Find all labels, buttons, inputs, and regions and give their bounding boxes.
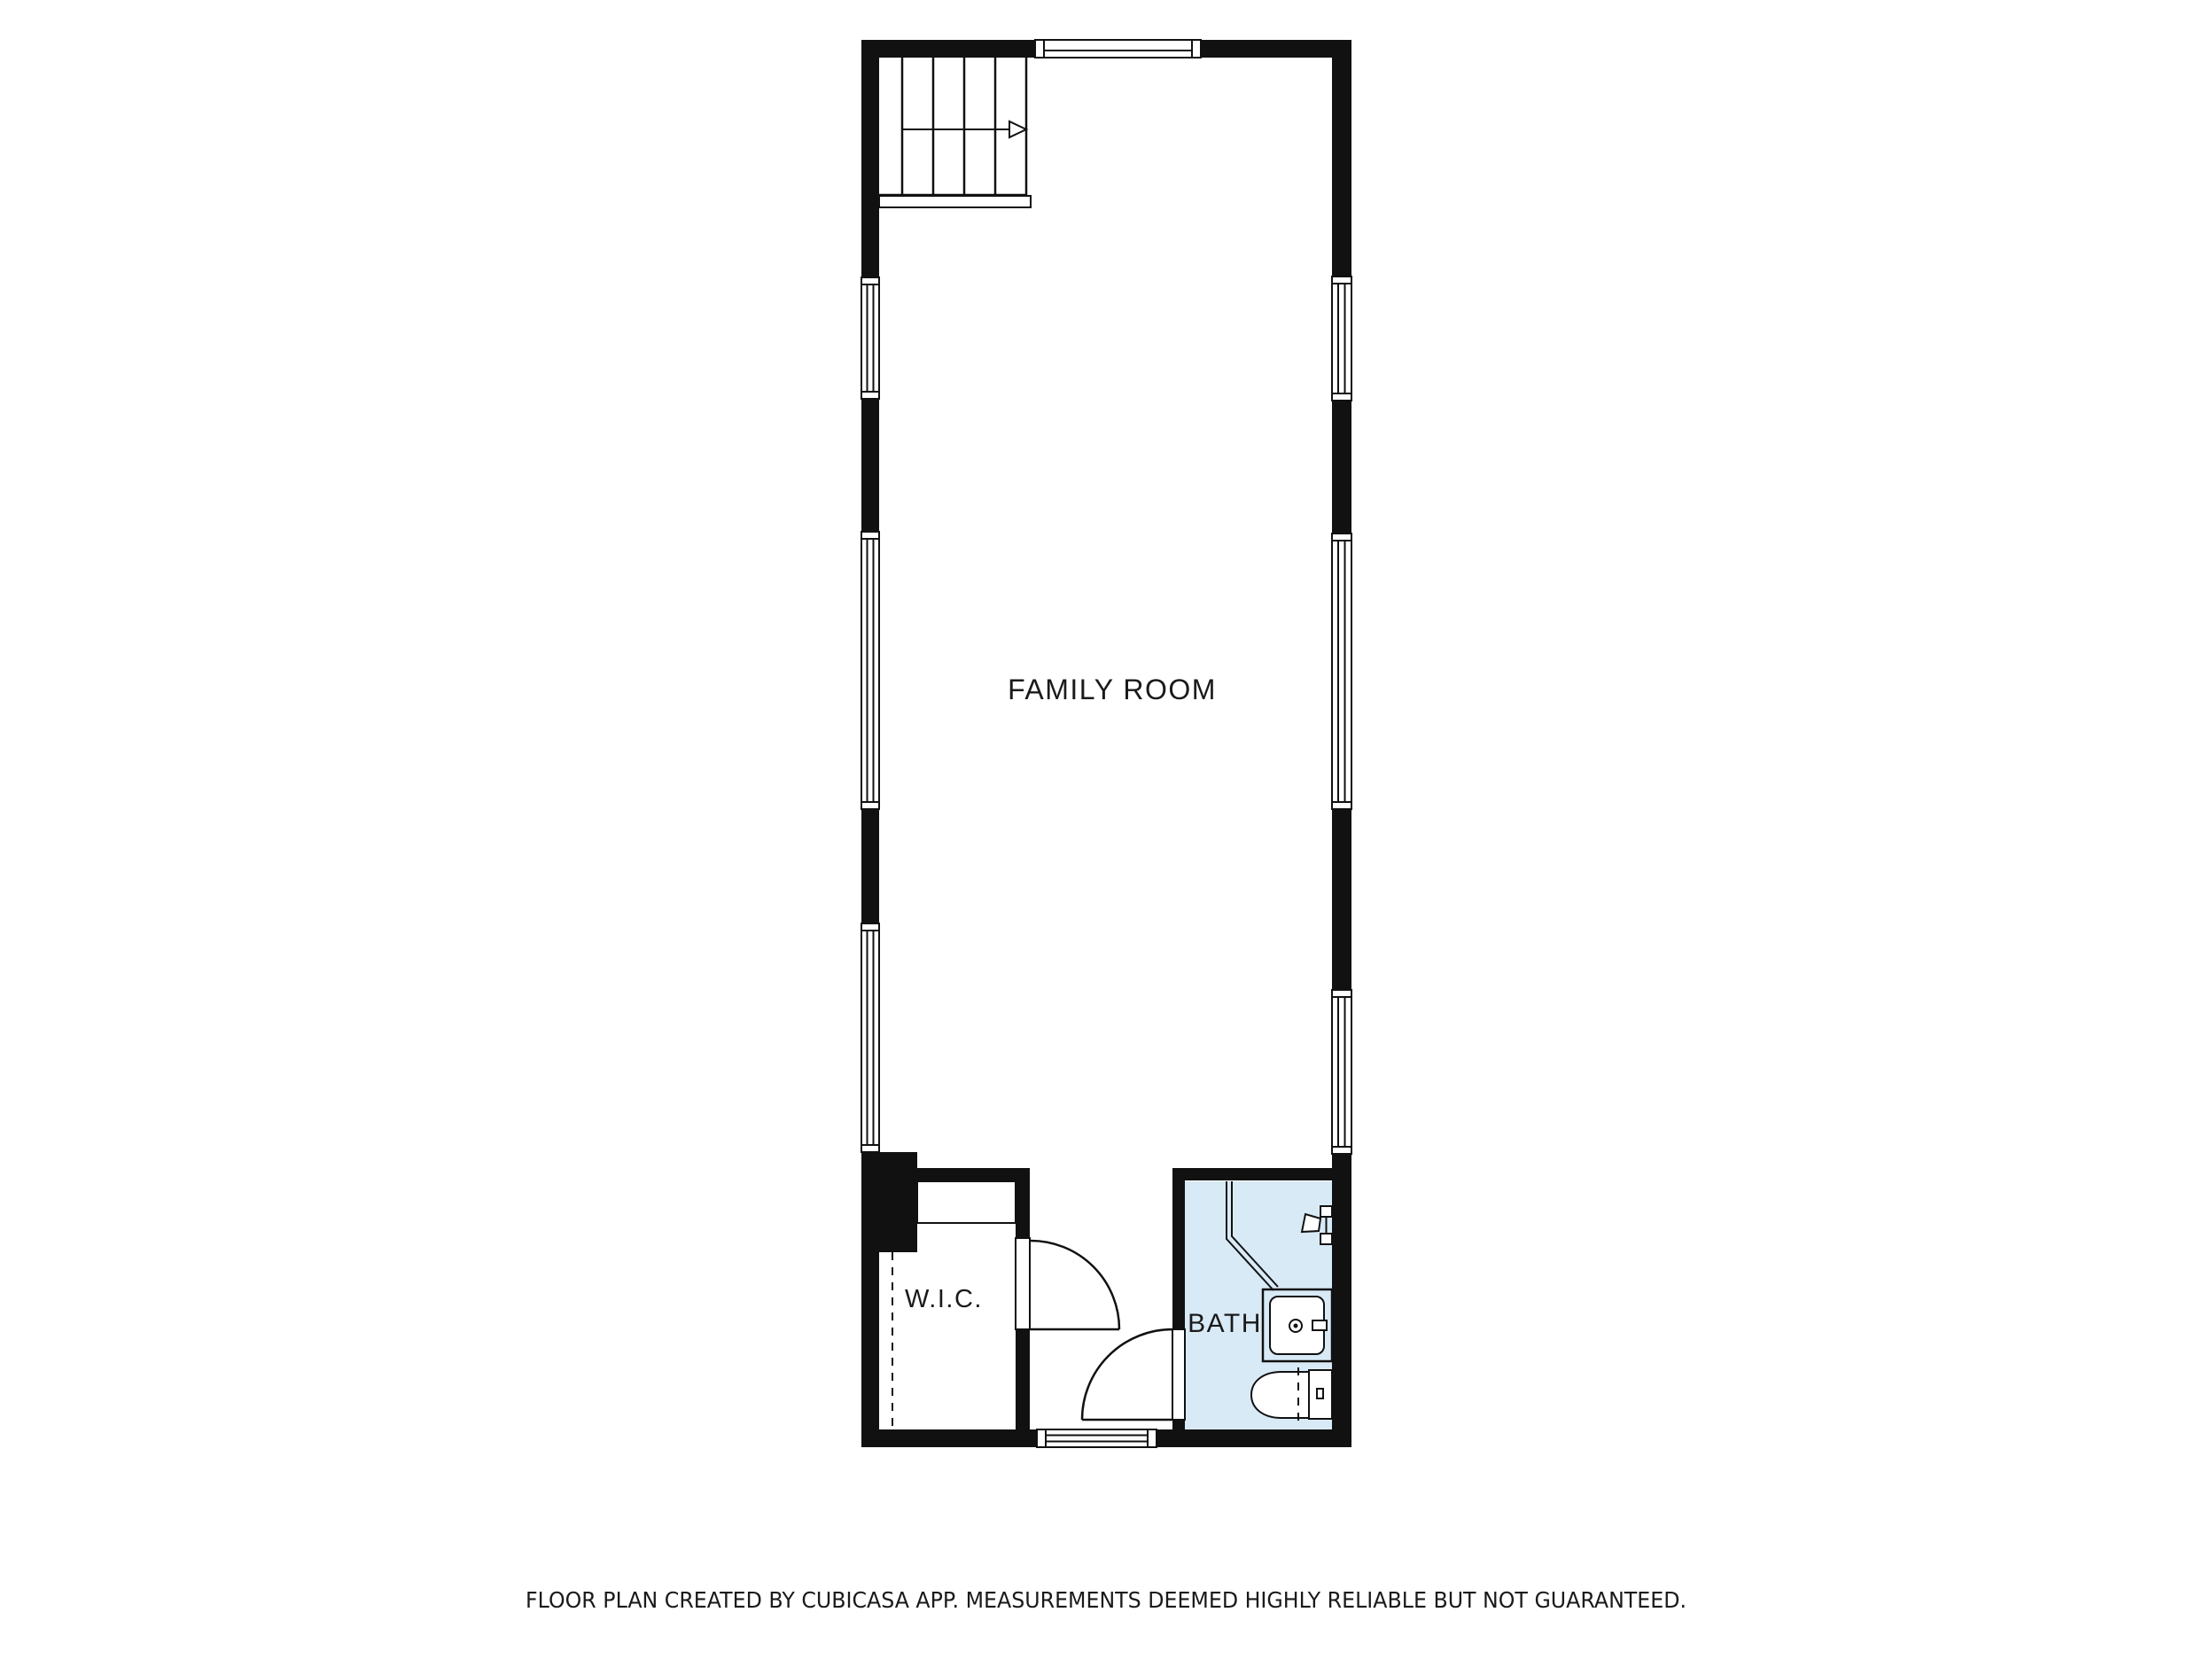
door-swing-icon bbox=[1082, 1329, 1185, 1420]
wall-corner-block bbox=[861, 1152, 917, 1252]
wardrobe-icon bbox=[917, 1181, 1016, 1223]
stair-landing-strip bbox=[879, 196, 1031, 207]
wall-segment bbox=[1172, 1180, 1185, 1329]
wall-segment bbox=[1332, 1154, 1351, 1429]
vanity-sink-icon bbox=[1263, 1289, 1332, 1361]
window-icon bbox=[861, 923, 879, 1152]
window-icon bbox=[1332, 534, 1351, 809]
window-icon bbox=[1037, 1429, 1157, 1447]
window-icon bbox=[1035, 40, 1201, 58]
wall-segment bbox=[1332, 401, 1351, 534]
door-swing-icon bbox=[1016, 1238, 1119, 1329]
floor-plan-canvas: FAMILY ROOM W.I.C. BATH FLOOR PLAN CREAT… bbox=[0, 0, 2212, 1659]
wall-segment bbox=[1172, 1168, 1332, 1180]
family-room-label: FAMILY ROOM bbox=[1008, 674, 1217, 705]
wall-segment bbox=[861, 399, 879, 532]
wic-label: W.I.C. bbox=[905, 1285, 983, 1313]
window-icon bbox=[1332, 276, 1351, 401]
wall-segment bbox=[1172, 1420, 1185, 1429]
doors bbox=[1016, 1238, 1185, 1420]
window-icon bbox=[861, 277, 879, 399]
wall-segment bbox=[1157, 1429, 1351, 1447]
staircase bbox=[879, 58, 1031, 207]
wall-segment bbox=[861, 1429, 1037, 1447]
window-icon bbox=[1332, 990, 1351, 1154]
wall-segment bbox=[1201, 40, 1351, 58]
wall-segment bbox=[1332, 809, 1351, 990]
wall-segment bbox=[1016, 1329, 1030, 1429]
floor-plan-page: FAMILY ROOM W.I.C. BATH FLOOR PLAN CREAT… bbox=[0, 0, 2212, 1659]
window-icon bbox=[861, 532, 879, 809]
wall-segment bbox=[861, 40, 1035, 58]
wall-segment bbox=[1332, 40, 1351, 276]
footer-disclaimer: FLOOR PLAN CREATED BY CUBICASA APP. MEAS… bbox=[526, 1587, 1686, 1613]
wall-segment bbox=[861, 809, 879, 923]
wall-segment bbox=[1016, 1180, 1030, 1238]
wall-segment bbox=[861, 40, 879, 277]
bath-label: BATH bbox=[1188, 1309, 1262, 1338]
